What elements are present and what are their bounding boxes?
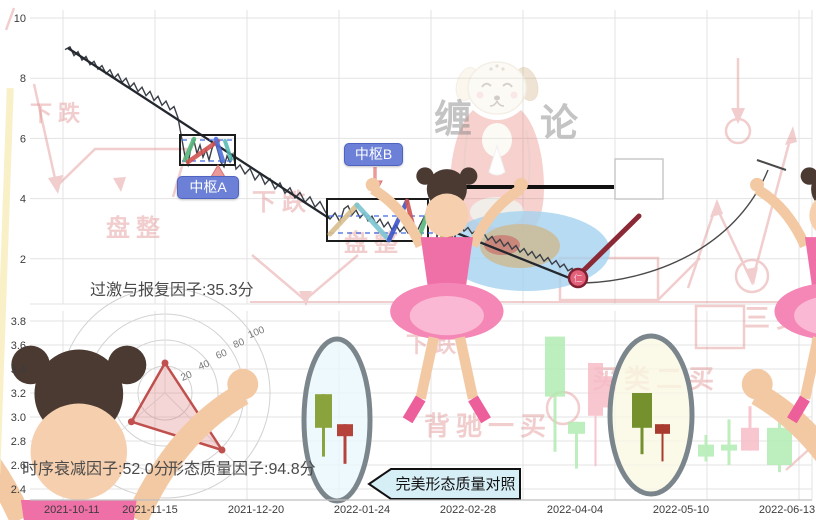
x-tick-label: 2022-01-24 bbox=[334, 504, 390, 516]
radar-tick-label: 60 bbox=[214, 347, 229, 362]
x-tick-label: 2022-04-04 bbox=[547, 504, 603, 516]
pendulum-ball-glyph: 仁 bbox=[573, 273, 582, 284]
x-tick-label: 2022-06-13 bbox=[759, 504, 815, 516]
bottom-y-tick-label: 3.2 bbox=[11, 388, 26, 400]
radar-tick-label: 40 bbox=[197, 358, 212, 373]
candlestick bbox=[568, 422, 585, 469]
pattern-quality-factor-text: 形态质量因子:94.8分 bbox=[168, 455, 316, 479]
top-y-tick-label: 4 bbox=[20, 194, 26, 206]
brand-char-right: 论 bbox=[540, 92, 578, 147]
bottom-y-tick-label: 2.4 bbox=[11, 484, 26, 496]
brand-char-left: 缠 bbox=[434, 88, 472, 143]
top-y-tick-label: 10 bbox=[14, 13, 26, 25]
bottom-y-tick-label: 3.0 bbox=[11, 412, 26, 424]
watermark-text: 盘整 bbox=[106, 214, 166, 242]
pivot-a-label[interactable]: 中枢A bbox=[177, 176, 239, 199]
x-tick-label: 2021-11-15 bbox=[122, 504, 177, 516]
swing-curve-endcap bbox=[757, 160, 786, 170]
x-tick-label: 2021-10-11 bbox=[44, 504, 99, 516]
candlestick bbox=[721, 419, 737, 465]
radar-tick-label: 80 bbox=[232, 336, 247, 351]
overreaction-factor-text: 过激与报复因子:35.3分 bbox=[90, 276, 254, 300]
chan-theory-analysis-chart: 下跌盘整下跌盘整下跌三买买类二买背驰一买 bbox=[0, 0, 816, 520]
watermark-text: 下跌 bbox=[30, 101, 86, 126]
perfect-pattern-callout-label: 完美形态质量对照 bbox=[391, 470, 520, 499]
x-tick-label: 2022-05-10 bbox=[653, 504, 709, 516]
candlestick bbox=[741, 406, 759, 450]
top-y-tick-label: 2 bbox=[20, 254, 26, 266]
top-y-tick-label: 6 bbox=[20, 133, 26, 145]
bottom-y-tick-label: 3.4 bbox=[11, 364, 26, 376]
top-y-tick-label: 8 bbox=[20, 73, 26, 85]
chart-canvas: 下跌盘整下跌盘整下跌三买买类二买背驰一买 bbox=[0, 0, 816, 520]
radar-tick-label: 100 bbox=[247, 325, 267, 342]
time-decay-factor-text: 时序衰减因子:52.0分 bbox=[22, 455, 170, 479]
bottom-y-tick-label: 3.6 bbox=[11, 340, 26, 352]
candlestick bbox=[698, 435, 714, 461]
x-tick-label: 2021-12-20 bbox=[228, 504, 284, 516]
x-tick-label: 2022-02-28 bbox=[440, 504, 496, 516]
bottom-y-tick-label: 2.8 bbox=[11, 436, 26, 448]
bottom-y-tick-label: 3.8 bbox=[11, 316, 26, 328]
pivot-b-label[interactable]: 中枢B bbox=[344, 143, 403, 166]
